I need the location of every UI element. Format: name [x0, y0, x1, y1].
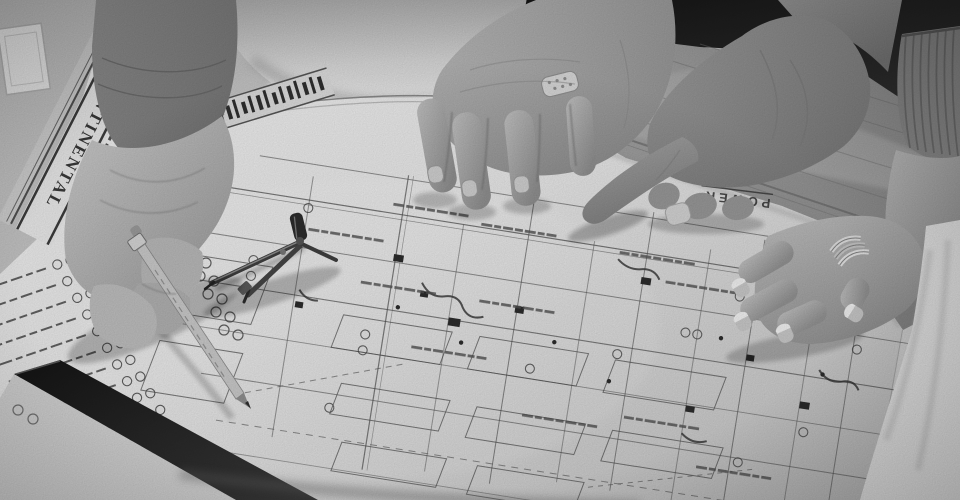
- photo-blueprint-review: CONTINENTAL: [0, 0, 960, 500]
- photo-canvas: CONTINENTAL: [0, 0, 960, 500]
- film-grain: [0, 0, 960, 500]
